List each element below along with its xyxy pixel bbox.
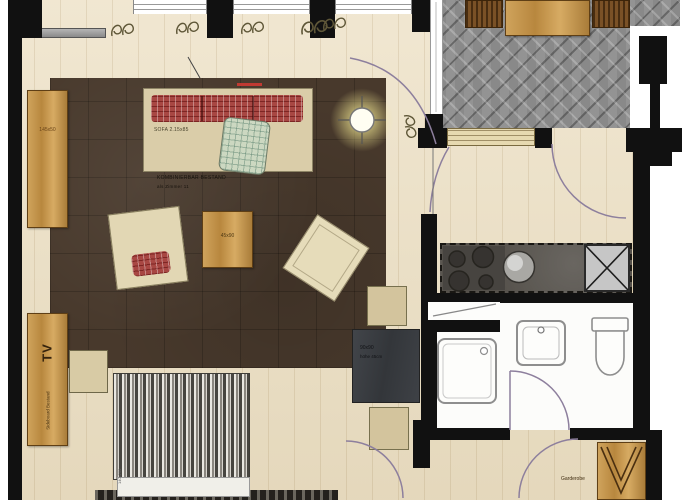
balcony-door-opening: [430, 0, 443, 116]
wall: [428, 318, 500, 332]
terrace-chair: [465, 0, 503, 28]
bed-size-label: 140x200: [118, 469, 123, 484]
wardrobe: [597, 442, 646, 500]
lamp-glow: [330, 88, 394, 152]
floor-plan: 145x50 SOFA 2.15x85 KOMBINIERBAR BESTAND…: [0, 0, 700, 500]
sofa-cushion-seam: [252, 96, 254, 121]
wall: [418, 128, 447, 148]
bed: [113, 373, 250, 480]
chimney-stem: [650, 84, 660, 132]
wall: [633, 148, 650, 440]
wall: [8, 0, 42, 38]
wardrobe-label: Garderobe: [561, 477, 585, 483]
side-table: [69, 350, 108, 393]
armchair: [108, 206, 189, 290]
french-door-sill: [447, 128, 535, 146]
stool: [369, 407, 409, 450]
table-note-label: höhe 45cm: [360, 354, 382, 359]
sofa-pillow: [218, 116, 271, 175]
window: [133, 0, 207, 14]
exterior-area: [680, 0, 700, 148]
chimney-base: [634, 150, 672, 166]
sideboard: [27, 90, 68, 228]
table-size-label: 90x90: [360, 346, 374, 352]
wall-pier: [412, 0, 430, 32]
coffee-table-size-label: 45x90: [202, 234, 253, 240]
terrace-table: [505, 0, 590, 36]
exterior-area: [650, 148, 700, 438]
window: [335, 0, 412, 14]
exterior-area: [660, 432, 700, 500]
armchair-cushion: [131, 251, 171, 277]
plan-note-line2: als Zimmer 11: [157, 184, 189, 189]
bed-foot: [117, 477, 250, 497]
wall-pier: [207, 0, 233, 38]
wall: [535, 128, 552, 148]
sofa-cushion-seam: [201, 96, 203, 121]
wall: [421, 428, 510, 440]
chimney-flue: [639, 36, 667, 84]
duct-shaft: [428, 302, 500, 320]
dimension-mark: [237, 83, 262, 86]
cooktop: [443, 246, 505, 290]
tv-note-label: Sideboard Bestand: [45, 371, 50, 451]
terrace-chair: [592, 0, 630, 28]
fridge-unit: [584, 244, 630, 292]
wall: [8, 0, 22, 500]
dining-table: [352, 329, 420, 403]
wall-pier: [310, 0, 335, 38]
stool: [367, 286, 407, 326]
sideboard-size-label: 145x50: [27, 128, 68, 134]
wall: [646, 430, 662, 500]
plan-note-line1: KOMBINIERBAR BESTAND: [157, 176, 226, 182]
window: [233, 0, 310, 14]
sofa-label: SOFA 2.15x85: [154, 128, 189, 134]
